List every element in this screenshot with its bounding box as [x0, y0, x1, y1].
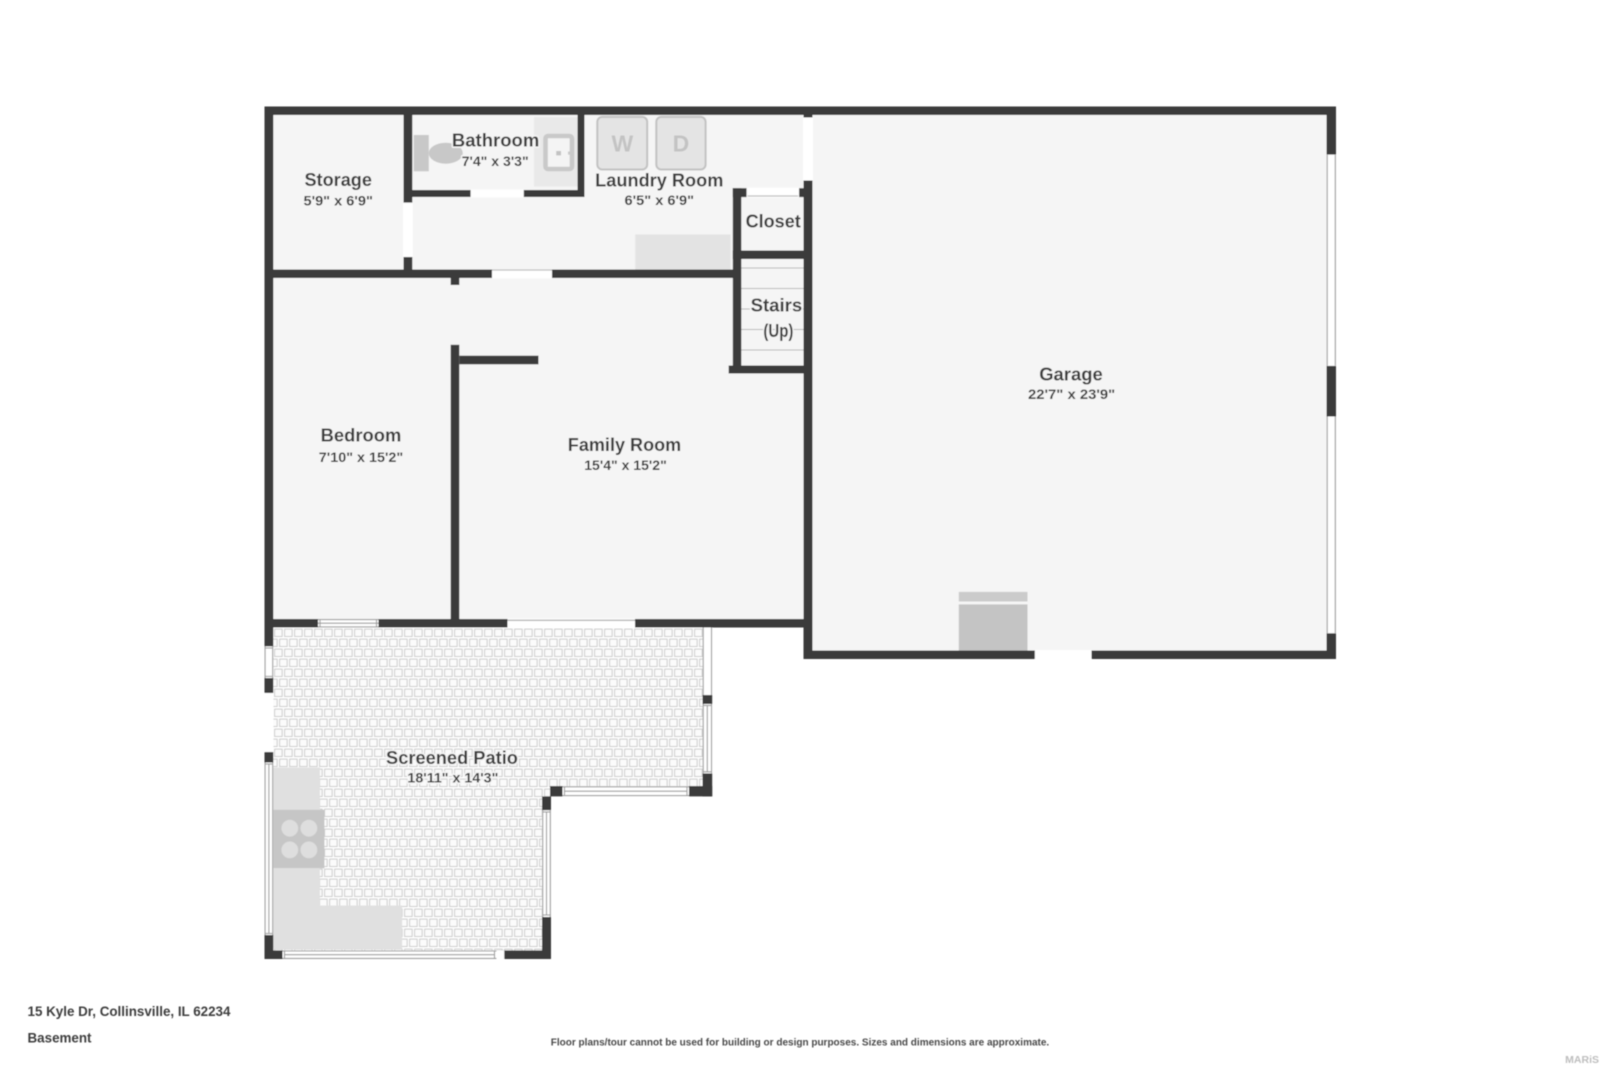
svg-text:5'9" x 6'9": 5'9" x 6'9" [304, 193, 373, 209]
svg-text:MARiS: MARiS [1565, 1054, 1599, 1066]
svg-text:6'5" x 6'9": 6'5" x 6'9" [625, 193, 695, 209]
svg-text:Basement: Basement [28, 1031, 93, 1046]
svg-text:Bathroom: Bathroom [452, 130, 539, 151]
svg-text:W: W [611, 131, 633, 157]
svg-text:Screened Patio: Screened Patio [386, 747, 518, 768]
svg-text:(Up): (Up) [763, 320, 793, 341]
svg-text:15'4" x 15'2": 15'4" x 15'2" [584, 458, 667, 474]
svg-text:Closet: Closet [746, 210, 801, 231]
svg-text:Stairs: Stairs [751, 295, 803, 316]
svg-text:Laundry Room: Laundry Room [595, 170, 723, 191]
svg-text:22'7" x 23'9": 22'7" x 23'9" [1028, 387, 1115, 403]
svg-text:Bedroom: Bedroom [321, 425, 402, 446]
svg-text:Storage: Storage [304, 169, 372, 190]
svg-text:Garage: Garage [1039, 364, 1103, 385]
svg-text:Floor plans/tour cannot be use: Floor plans/tour cannot be used for buil… [551, 1037, 1050, 1048]
svg-text:7'4" x 3'3": 7'4" x 3'3" [462, 154, 529, 170]
svg-text:18'11" x 14'3": 18'11" x 14'3" [407, 770, 498, 786]
svg-text:D: D [673, 131, 690, 157]
svg-text:15 Kyle Dr, Collinsville, IL 6: 15 Kyle Dr, Collinsville, IL 62234 [28, 1004, 232, 1019]
svg-text:7'10" x 15'2": 7'10" x 15'2" [319, 450, 403, 466]
svg-text:Family Room: Family Room [568, 434, 681, 455]
